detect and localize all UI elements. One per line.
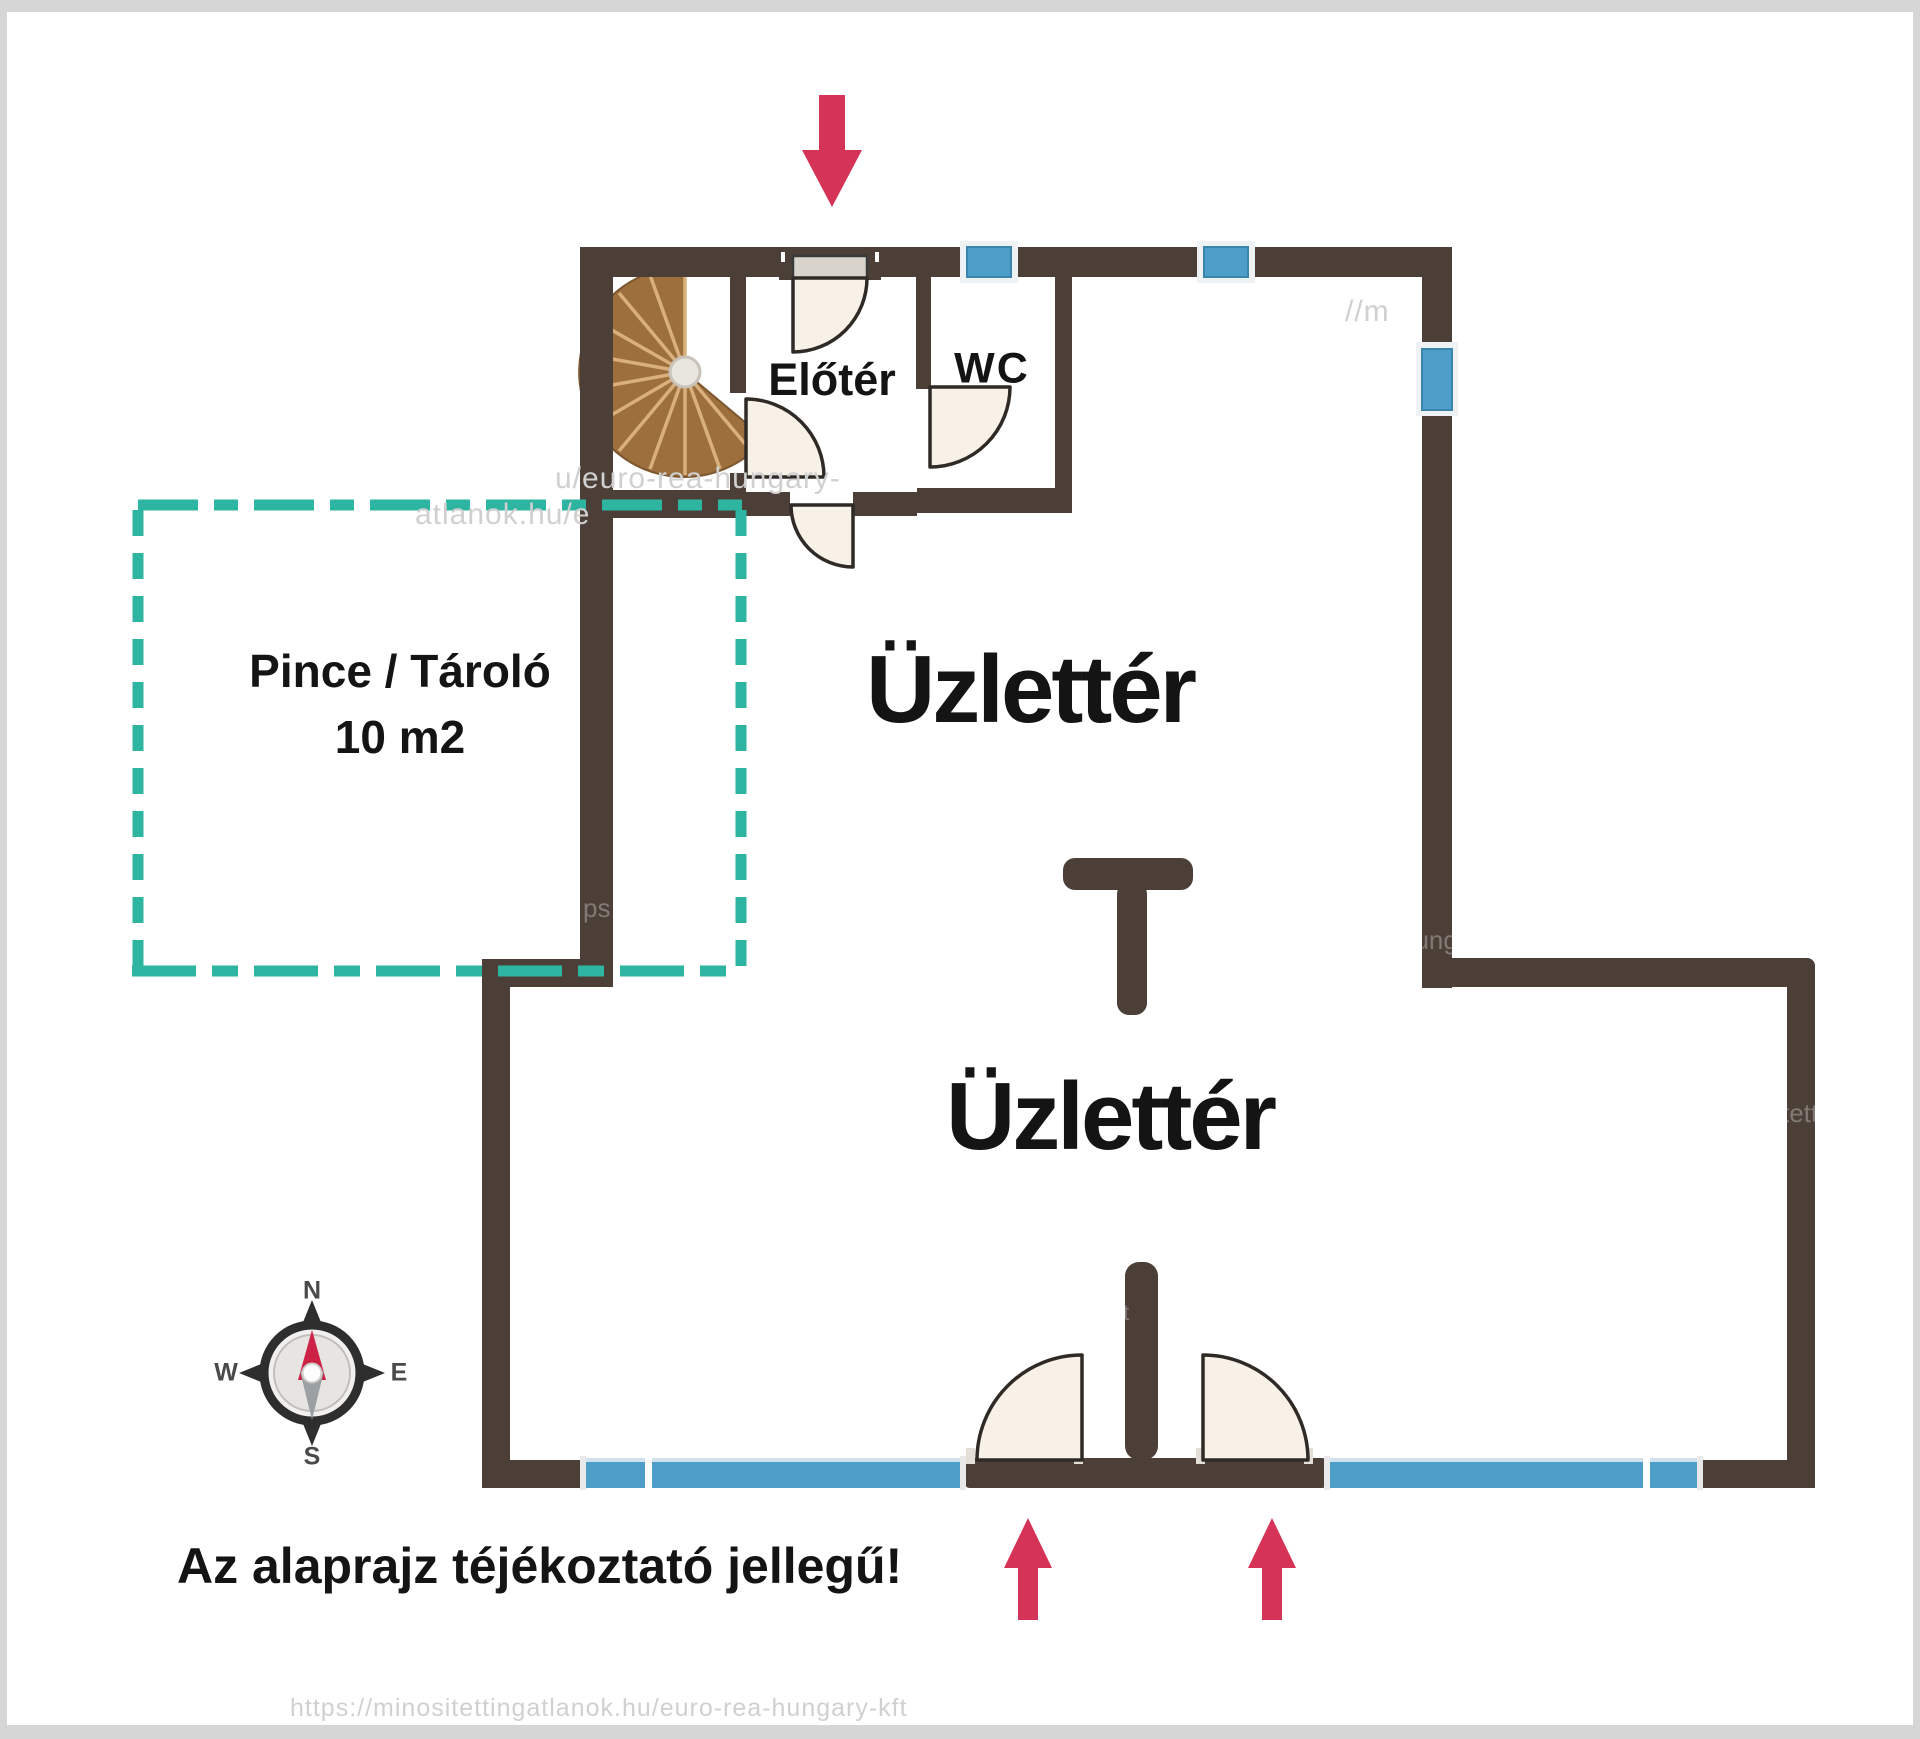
frame-edge-bottom [0,1725,1920,1739]
label-foyer: Előtér [768,354,896,406]
watermark-fragment: ps:/ [583,893,625,924]
floorplan-drawing [0,0,1920,1739]
compass-letter-n: N [303,1277,321,1306]
entrance-arrow-up-left-icon [1004,1518,1052,1620]
label-disclaimer: Az alaprajz téjékoztató jellegű! [177,1537,902,1595]
watermark-fragment: kft [1106,1300,1129,1326]
foyer-south-door [791,505,853,567]
label-shop-lower: Üzlettér [946,1062,1274,1172]
glazing-mullion-right [1643,1458,1650,1490]
watermark-fragment: u/euro-rea-hungary- [555,462,841,496]
entrance-arrow-up-right-icon [1248,1518,1296,1620]
window-top-2 [1197,241,1255,283]
doors [719,250,1313,1464]
watermark-fragment: tett [1782,1098,1818,1129]
watermark-url: https://minositettingatlanok.hu/euro-rea… [290,1694,908,1723]
frame-edge-left [0,0,7,1739]
entrance-arrow-down-icon [802,95,862,207]
label-cellar: Pince / Tároló 10 m2 [249,638,551,770]
compass-letter-e: E [391,1359,408,1388]
floorplan-canvas: Üzlettér Üzlettér Előtér WC Pince / Táro… [0,0,1920,1739]
entrance-door-right [1203,1355,1308,1460]
window-top-1 [960,241,1018,283]
label-cellar-line1: Pince / Tároló [249,638,551,704]
window-right [1416,342,1458,416]
label-shop-upper: Üzlettér [866,635,1194,745]
entrance-mullion-wall [1125,1262,1158,1460]
entrance-door-left [977,1355,1082,1460]
label-wc: WC [954,345,1030,394]
compass-rose-icon [239,1300,385,1446]
frame-edge-right [1913,0,1920,1739]
watermark-fragment: hung [1400,925,1458,956]
glazing-mullion-left [645,1458,652,1490]
watermark-fragment: atlanok.hu/e [415,498,590,532]
watermark-fragment: //m [1345,295,1390,329]
compass-letter-s: S [304,1443,321,1472]
label-cellar-line2: 10 m2 [249,704,551,770]
frame-edge-top [0,0,1920,12]
compass-letter-w: W [214,1359,238,1388]
t-wall-stem [1117,882,1147,1015]
wc-door [930,387,1010,467]
